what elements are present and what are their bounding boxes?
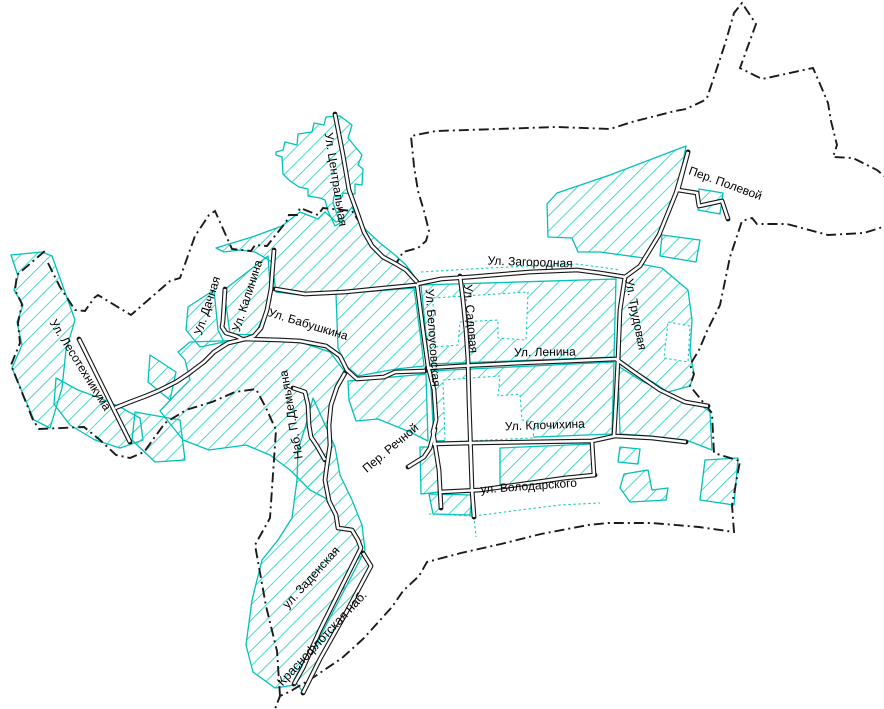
svg-text:Ул. Клочихина: Ул. Клочихина xyxy=(505,417,586,434)
svg-text:Ул. Загородная: Ул. Загородная xyxy=(487,254,573,271)
svg-text:Ул. Ленина: Ул. Ленина xyxy=(514,344,576,359)
